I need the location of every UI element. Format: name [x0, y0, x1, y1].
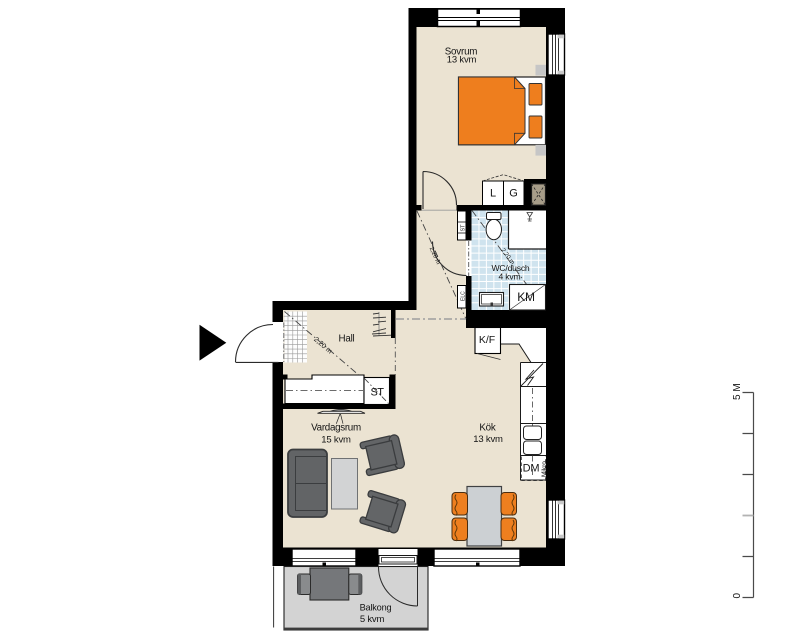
svg-text:5 kvm: 5 kvm — [360, 614, 385, 625]
svg-text:13 kvm: 13 kvm — [447, 55, 477, 66]
svg-text:DM: DM — [523, 463, 540, 475]
svg-text:15 kvm: 15 kvm — [321, 435, 351, 446]
svg-text:K/F: K/F — [479, 334, 495, 346]
svg-text:Hall: Hall — [338, 334, 354, 345]
svg-text:ELC: ELC — [461, 291, 467, 301]
svg-text:Mikro: Mikro — [541, 461, 548, 477]
svg-text:L: L — [490, 188, 496, 200]
svg-text:Vardagsrum: Vardagsrum — [311, 423, 361, 434]
svg-text:ST: ST — [461, 224, 467, 232]
svg-text:13 kvm: 13 kvm — [473, 434, 503, 445]
svg-text:Kök: Kök — [479, 423, 496, 434]
svg-text:ST: ST — [370, 387, 384, 399]
svg-text:G: G — [509, 188, 518, 200]
svg-text:KM: KM — [517, 290, 535, 304]
svg-text:Balkong: Balkong — [360, 603, 392, 613]
svg-text:5 M: 5 M — [732, 383, 743, 400]
svg-text:0: 0 — [732, 593, 743, 599]
svg-text:4 kvm: 4 kvm — [499, 272, 521, 282]
